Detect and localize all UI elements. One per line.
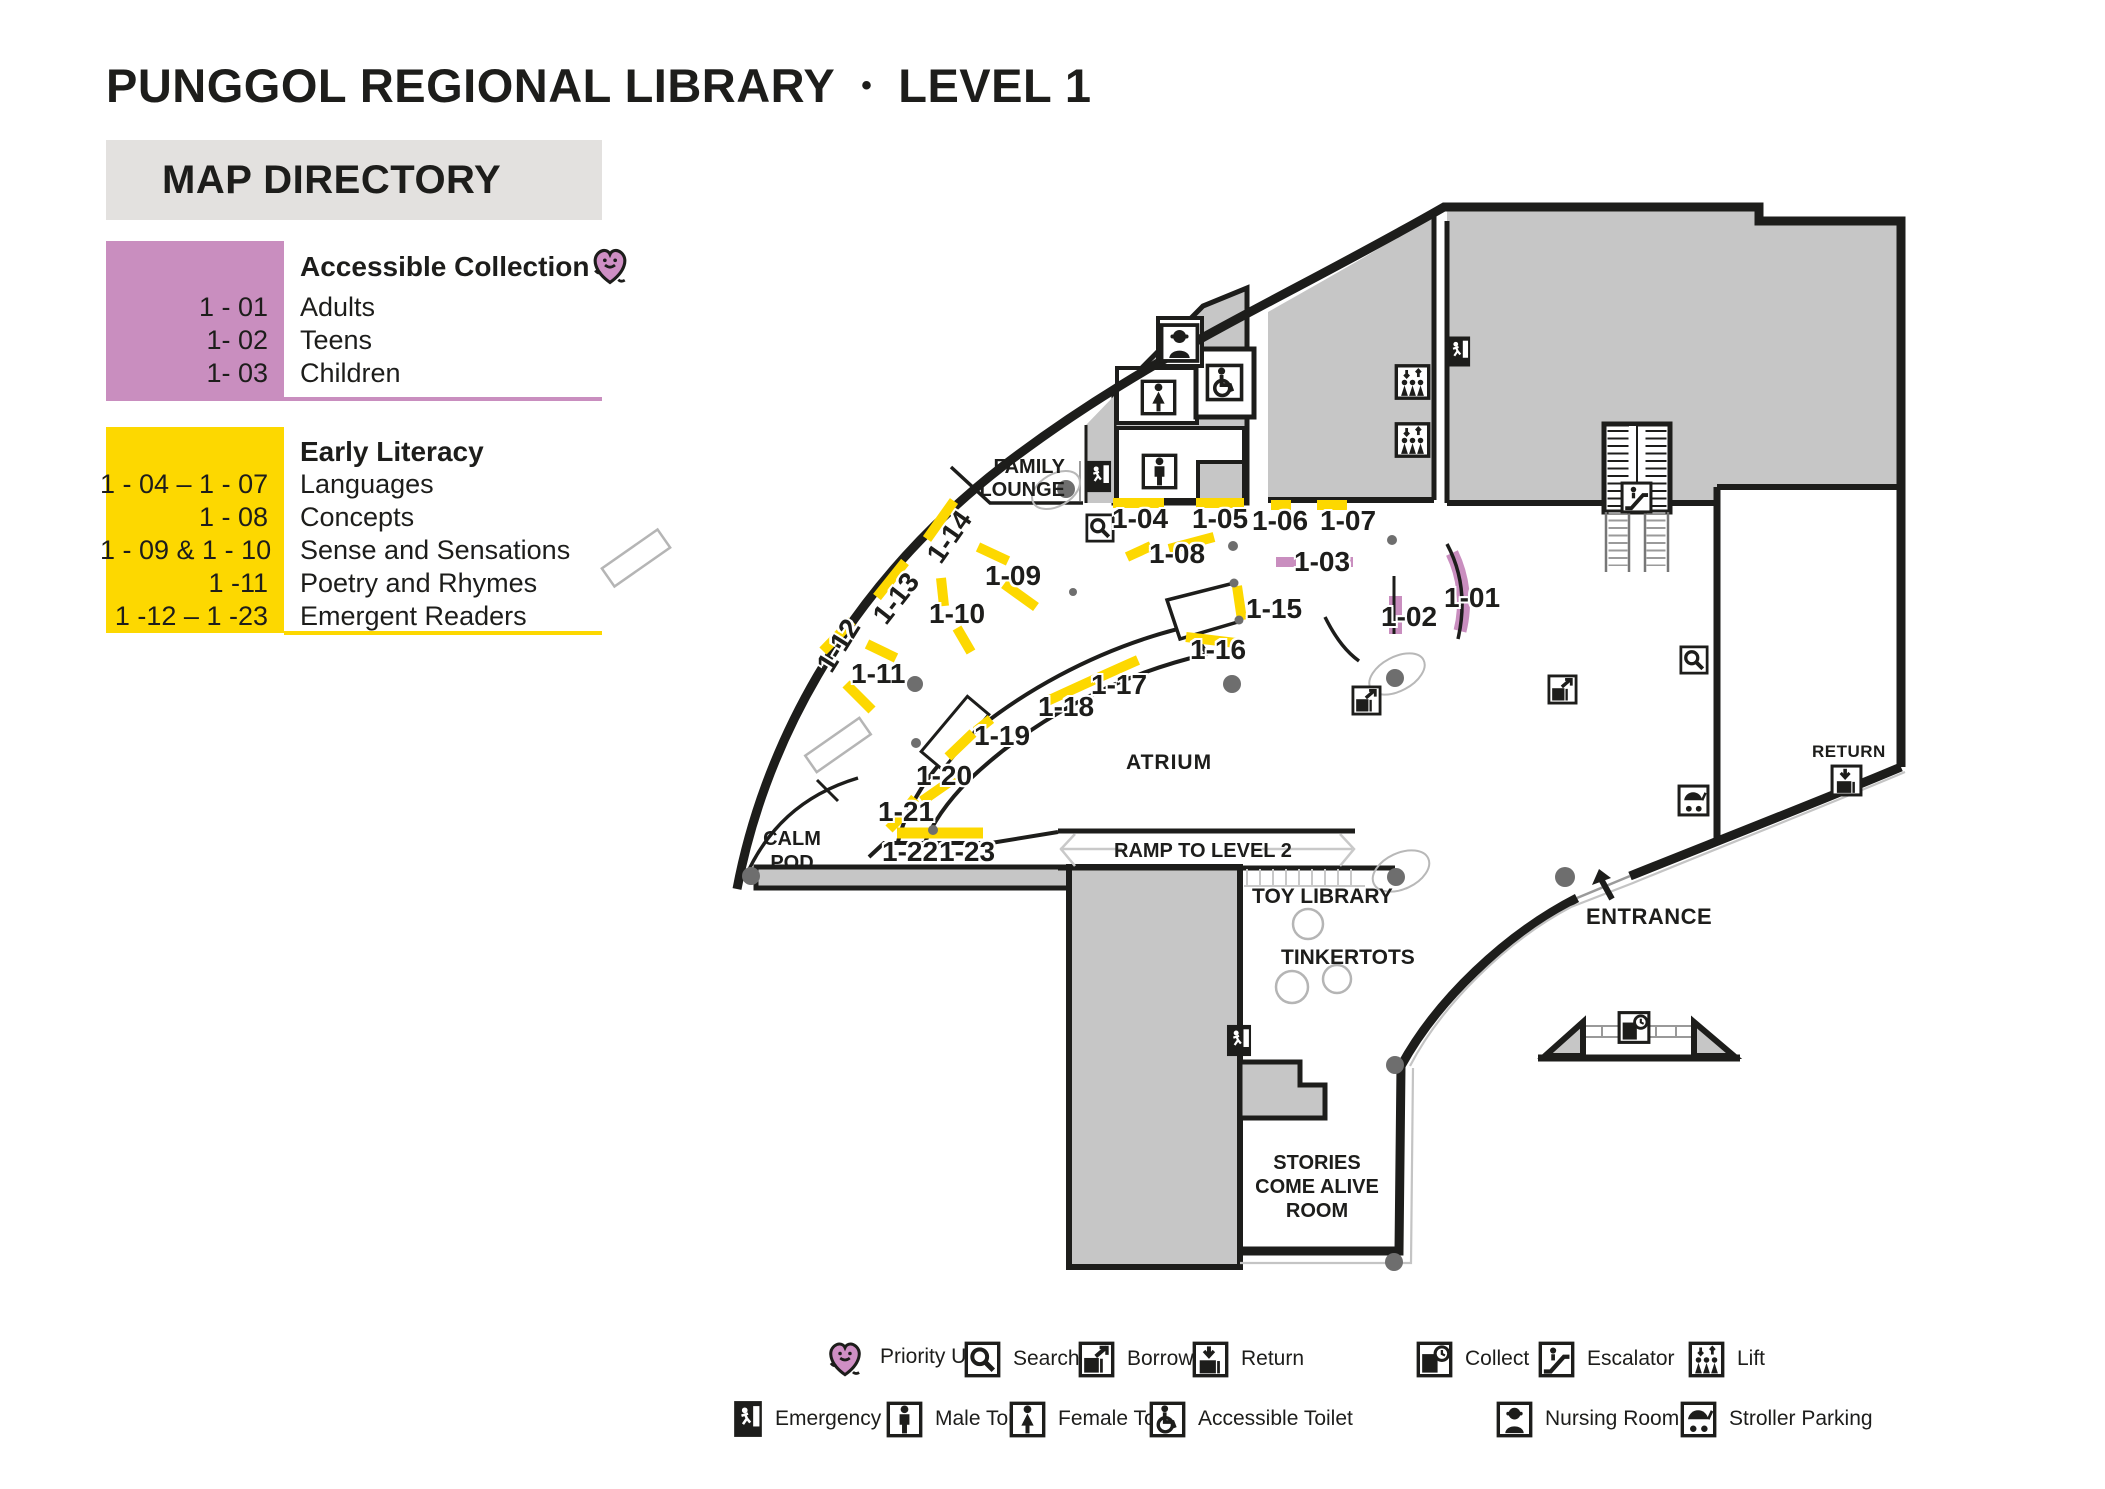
shelf-label-1-08: 1-08: [1149, 540, 1205, 568]
legend-item-collect: Collect: [1416, 1336, 1529, 1382]
lift-icon: [1396, 424, 1428, 456]
search-icon: [1087, 515, 1113, 541]
area-tinkertots: TINKERTOTS: [1281, 946, 1415, 969]
legend-item-lift: Lift: [1688, 1336, 1765, 1382]
shelf-label-1-22: 1-22: [882, 838, 938, 866]
area-entrance: ENTRANCE: [1586, 905, 1712, 929]
shelf-label-1-18: 1-18: [1038, 693, 1094, 721]
nursing-room-icon: [1496, 1401, 1533, 1438]
shelf-label-1-02: 1-02: [1381, 603, 1437, 631]
borrow-icon: [1078, 1341, 1115, 1378]
shelf-label-1-07: 1-07: [1320, 507, 1376, 535]
legend-item-escalator: Escalator: [1538, 1336, 1675, 1382]
stroller-parking-icon: [1679, 786, 1708, 815]
legend-item-nursing-room: Nursing Room: [1496, 1396, 1679, 1442]
area-family-lounge-line2: LOUNGE: [940, 479, 1065, 501]
furniture: [602, 529, 1241, 772]
legend-label: Stroller Parking: [1729, 1407, 1873, 1431]
lift-icon: [1396, 366, 1428, 398]
return-icon: [1192, 1341, 1229, 1378]
legend-item-return: Return: [1192, 1336, 1304, 1382]
shelf-label-1-17: 1-17: [1091, 671, 1147, 699]
shelf-label-1-23: 1-23: [939, 838, 995, 866]
area-family-lounge-line1: FAMILY: [940, 456, 1065, 478]
escalator-icon: [1622, 483, 1651, 512]
nursing-room-icon: [1162, 325, 1198, 361]
legend-label: Escalator: [1587, 1347, 1675, 1371]
floor-plan: [0, 0, 2105, 1489]
area-ramp: RAMP TO LEVEL 2: [1114, 840, 1292, 862]
male-toilet-icon: [1143, 455, 1175, 487]
accessible-toilet-icon: [1207, 365, 1241, 399]
legend-item-borrow: Borrow: [1078, 1336, 1194, 1382]
area-stories-line3: ROOM: [1238, 1200, 1396, 1222]
page: { "title": {"library": "PUNGGOL REGIONAL…: [0, 0, 2105, 1489]
shelf-label-1-03: 1-03: [1294, 548, 1350, 576]
lift-icon: [1688, 1341, 1725, 1378]
search-icon: [1681, 647, 1707, 673]
collect-icon: [1619, 1013, 1649, 1043]
area-calm-pod-line1: CALM: [744, 828, 840, 850]
accessible-toilet-icon: [1149, 1401, 1186, 1438]
building-blocks: [756, 207, 1901, 1267]
area-atrium: ATRIUM: [1126, 751, 1212, 774]
emergency-exit-icon: [1087, 461, 1111, 492]
shelf-label-1-20: 1-20: [916, 762, 972, 790]
emergency-exit-icon: [733, 1400, 763, 1438]
shelf-label-1-09: 1-09: [985, 562, 1041, 590]
female-toilet-icon: [1009, 1401, 1046, 1438]
area-stories-line2: COME ALIVE: [1238, 1176, 1396, 1198]
shelf-label-1-11: 1-11: [851, 660, 906, 688]
legend-item-stroller-parking: Stroller Parking: [1680, 1396, 1873, 1442]
priority-use-icon: [822, 1334, 868, 1380]
shelf-label-1-05: 1-05: [1192, 505, 1248, 533]
legend-label: Search: [1013, 1347, 1080, 1371]
legend-label: Accessible Toilet: [1198, 1407, 1353, 1431]
shelf-label-1-16: 1-16: [1190, 636, 1246, 664]
legend-label: Nursing Room: [1545, 1407, 1679, 1431]
legend-label: Return: [1241, 1347, 1304, 1371]
borrow-icon: [1549, 676, 1576, 703]
legend-item-accessible-toilet: Accessible Toilet: [1149, 1396, 1353, 1442]
emergency-exit-icon: [1227, 1025, 1251, 1056]
return-icon: [1832, 766, 1861, 795]
shelf-label-1-10: 1-10: [929, 600, 985, 628]
shelf-label-1-21: 1-21: [878, 798, 934, 826]
shelf-label-1-19: 1-19: [974, 722, 1030, 750]
escalator-icon: [1538, 1341, 1575, 1378]
legend-item-search: Search: [964, 1336, 1080, 1382]
shelf-label-1-15: 1-15: [1246, 595, 1302, 623]
stroller-parking-icon: [1680, 1401, 1717, 1438]
shelf-label-1-04: 1-04: [1112, 505, 1168, 533]
area-return: RETURN: [1812, 743, 1886, 762]
area-calm-pod-line2: POD: [744, 852, 840, 874]
female-toilet-icon: [1142, 381, 1174, 413]
legend-label: Lift: [1737, 1347, 1765, 1371]
emergency-exit-icon: [1447, 337, 1470, 367]
search-icon: [964, 1341, 1001, 1378]
collect-icon: [1416, 1341, 1453, 1378]
area-stories-line1: STORIES: [1238, 1152, 1396, 1174]
area-toy-library: TOY LIBRARY: [1252, 885, 1393, 908]
borrow-icon: [1353, 687, 1380, 714]
shelf-label-1-06: 1-06: [1252, 507, 1308, 535]
legend-label: Borrow: [1127, 1347, 1194, 1371]
male-toilet-icon: [886, 1401, 923, 1438]
shelf-label-1-01: 1-01: [1444, 584, 1500, 612]
legend-label: Collect: [1465, 1347, 1529, 1371]
